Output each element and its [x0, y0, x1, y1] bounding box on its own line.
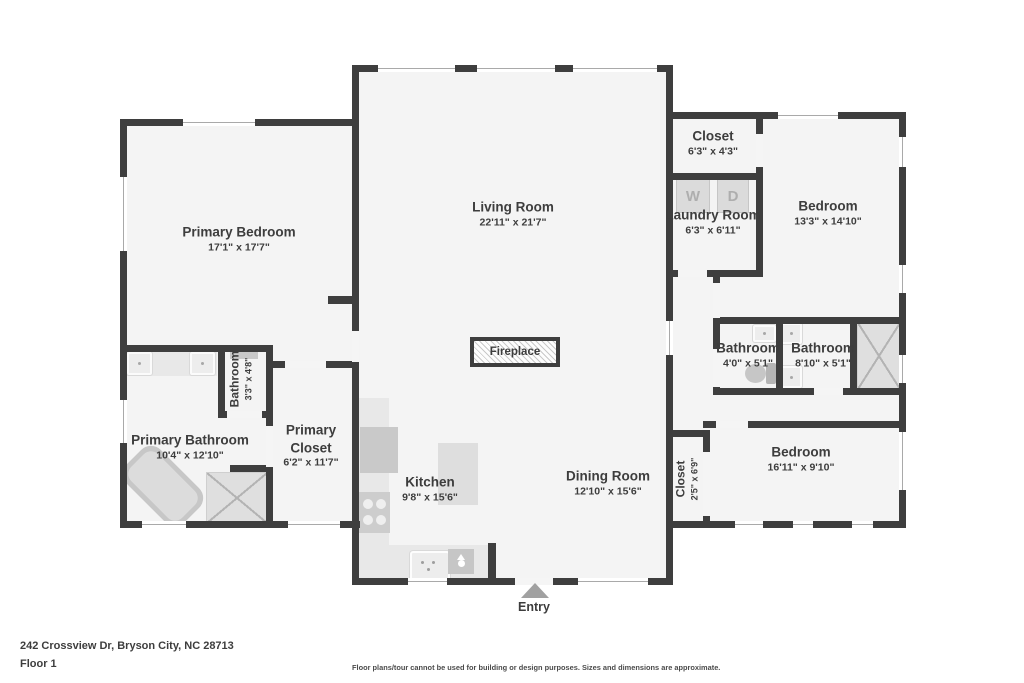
door-opening — [352, 331, 359, 362]
room-label-kitchen: Kitchen9'8" x 15'6" — [402, 473, 458, 504]
wall — [328, 296, 359, 304]
address-text: 242 Crossview Dr, Bryson City, NC 28713 — [20, 640, 234, 652]
window — [573, 65, 657, 72]
window — [899, 265, 906, 293]
wall — [352, 65, 359, 585]
wall — [713, 388, 906, 395]
window — [666, 321, 673, 355]
window — [778, 112, 838, 119]
room-label-dining-room: Dining Room12'10" x 15'6" — [566, 467, 650, 498]
window — [378, 65, 455, 72]
window — [899, 355, 906, 383]
window — [120, 177, 127, 251]
window — [142, 521, 186, 528]
window — [120, 400, 127, 443]
room-label-bathroom-hall: Bathroom4'0" x 5'1" — [716, 339, 780, 370]
wall — [488, 543, 496, 578]
door-opening — [716, 421, 748, 428]
room-label-primary-bathroom: Primary Bathroom10'4" x 12'10" — [131, 431, 249, 462]
room-label-primary-bedroom: Primary Bedroom17'1" x 17'7" — [182, 223, 295, 254]
door-opening — [756, 134, 763, 167]
shower-icon — [857, 322, 901, 390]
window — [899, 432, 906, 490]
window — [735, 521, 763, 528]
floor-plan: W D — [0, 0, 1024, 683]
floor-center-block — [352, 65, 673, 585]
shower-icon — [206, 472, 268, 524]
fireplace-icon: Fireplace — [470, 337, 560, 367]
room-label-primary-closet: Primary Closet6'2" x 11'7" — [269, 422, 353, 471]
window — [793, 521, 813, 528]
room-label-bedroom-upper: Bedroom13'3" x 14'10" — [794, 197, 862, 228]
window — [183, 119, 255, 126]
dishwasher-icon — [448, 549, 474, 574]
vanity-sink-icon — [127, 352, 152, 375]
room-label-bedroom-lower: Bedroom16'11" x 9'10" — [768, 443, 835, 474]
wall — [230, 465, 268, 472]
room-label-bathroom-small: Bathroom3'3" x 4'8" — [227, 351, 254, 408]
entry-arrow-icon — [521, 583, 549, 598]
room-label-bathroom-ensuite: Bathroom8'10" x 5'1" — [791, 339, 855, 370]
window — [288, 521, 340, 528]
room-label-closet-lower: Closet2'5" x 6'9" — [673, 458, 700, 501]
room-label-laundry-room: Laundry Room6'3" x 6'11" — [665, 206, 760, 237]
kitchen-sink-icon — [410, 551, 450, 581]
door-opening — [227, 411, 262, 418]
window — [477, 65, 555, 72]
window — [578, 578, 648, 585]
window — [852, 521, 873, 528]
floor-label: Floor 1 — [20, 658, 57, 670]
door-opening — [285, 361, 326, 368]
stove-icon — [359, 492, 390, 533]
window — [899, 137, 906, 167]
door-opening — [713, 283, 720, 318]
door-opening — [678, 270, 707, 277]
wall — [713, 317, 906, 324]
wall — [666, 173, 763, 180]
entry-label: Entry — [518, 600, 550, 614]
wall — [218, 345, 225, 418]
refrigerator — [360, 427, 398, 473]
window — [408, 578, 447, 585]
room-label-closet-upper: Closet6'3" x 4'3" — [688, 127, 738, 158]
door-opening — [703, 452, 710, 516]
door-opening — [814, 388, 843, 395]
vanity-sink-icon — [190, 352, 215, 375]
disclaimer-text: Floor plans/tour cannot be used for buil… — [352, 663, 720, 672]
room-label-living-room: Living Room22'11" x 21'7" — [472, 198, 554, 229]
